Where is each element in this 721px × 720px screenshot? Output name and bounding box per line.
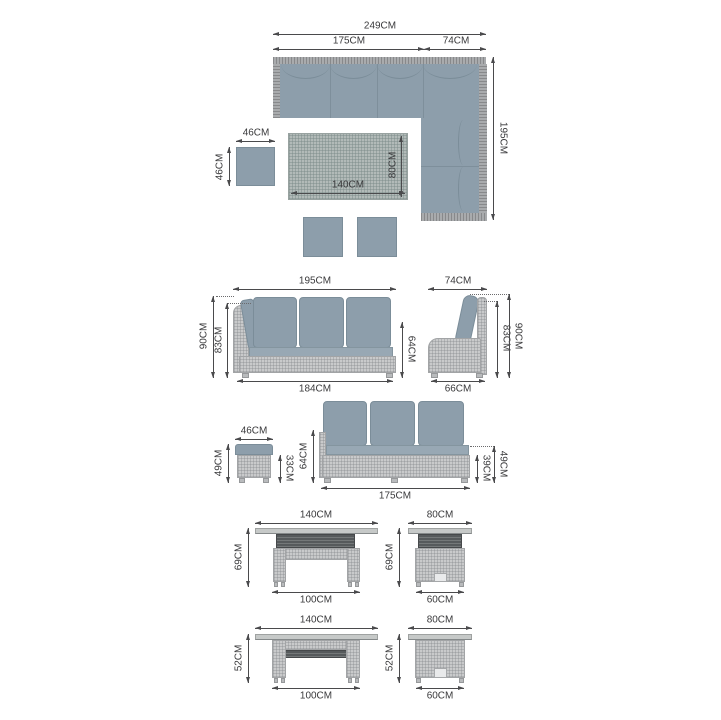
- dim-label-cushion-back-height: 83CM: [214, 327, 225, 354]
- dim-label-table-top-width: 140CM: [300, 510, 332, 521]
- dim-label-table-base-depth: 60CM: [427, 595, 454, 606]
- dim-line-stool-base-height: [280, 455, 281, 483]
- dim-line-lowtable-top-depth: [408, 628, 472, 629]
- dim-label-total-depth: 195CM: [498, 122, 509, 154]
- dim-label-lowtable-height-side: 52CM: [385, 645, 396, 672]
- foot: [391, 478, 398, 483]
- foot: [281, 582, 285, 587]
- foot: [416, 678, 421, 683]
- foot: [348, 582, 352, 587]
- dim-line-corner-section: [424, 49, 486, 50]
- table-underframe: [418, 534, 462, 548]
- extension-line: [470, 446, 494, 447]
- dim-label-table-height-side: 69CM: [385, 544, 396, 571]
- dim-label-lowtable-base-width: 100CM: [300, 691, 332, 702]
- dim-label-table-top-depth: 80CM: [427, 510, 454, 521]
- rattan-edge: [273, 57, 486, 64]
- dim-label-lowtable-top-width: 140CM: [300, 615, 332, 626]
- dim-label-end-height: 64CM: [406, 336, 417, 363]
- dim-line-table-length: [291, 193, 405, 194]
- dim-label-lowtable-top-depth: 80CM: [427, 615, 454, 626]
- dim-label-sofa-base-width: 184CM: [299, 384, 331, 395]
- dim-line-lowtable-top-width: [255, 628, 378, 629]
- dim-label-side-table-width: 46CM: [243, 128, 270, 139]
- foot: [386, 373, 393, 378]
- dim-label-stool-base-height: 33CM: [284, 455, 295, 482]
- cushion-divider: [421, 166, 479, 167]
- dim-label-section-base-height: 39CM: [481, 455, 492, 482]
- dim-line-end-height: [402, 322, 403, 378]
- dim-line-table-top-depth: [408, 523, 472, 524]
- dim-line-section-seat-height: [494, 446, 495, 483]
- foot: [431, 373, 438, 378]
- foot: [263, 478, 269, 483]
- extension-line: [470, 294, 509, 295]
- dim-line-section-base-height: [477, 455, 478, 483]
- back-cushion: [323, 401, 367, 446]
- dim-label-table-height: 69CM: [234, 544, 245, 571]
- rattan-edge: [421, 213, 487, 221]
- dim-line-cushion-back-height: [227, 303, 228, 378]
- base-detail: [434, 668, 447, 678]
- table-underframe: [276, 534, 355, 548]
- back-cushion: [458, 167, 478, 211]
- dim-line-side-total-height: [509, 294, 510, 378]
- table-leg: [346, 640, 360, 678]
- dim-label-side-table-depth: 46CM: [215, 154, 226, 181]
- table-underframe: [282, 650, 350, 658]
- dim-label-left-section: 175CM: [333, 36, 365, 47]
- rattan-edge: [479, 64, 487, 214]
- table-leg: [347, 548, 360, 582]
- dim-line-side-table-depth: [229, 147, 230, 186]
- dim-label-section-width: 175CM: [379, 491, 411, 502]
- dim-line-stool-total-height: [228, 444, 229, 483]
- stool-base: [237, 455, 271, 478]
- back-cushion: [346, 297, 391, 348]
- dim-line-total-depth: [493, 57, 494, 220]
- seat-cushion: [326, 445, 469, 455]
- foot: [476, 373, 483, 378]
- back-cushion: [253, 297, 297, 348]
- dim-label-corner-section: 74CM: [443, 36, 470, 47]
- dim-label-side-total-height: 90CM: [513, 323, 524, 350]
- dim-label-table-length: 140CM: [332, 180, 364, 191]
- dim-line-left-section: [273, 49, 424, 50]
- dim-line-lowtable-height-side: [399, 634, 400, 683]
- cushion-divider: [330, 64, 331, 118]
- dim-label-section-seat-height: 49CM: [498, 451, 509, 478]
- foot: [274, 582, 278, 587]
- cushion-divider: [423, 64, 424, 118]
- table-leg: [273, 548, 286, 582]
- table-leg: [272, 640, 286, 678]
- dim-label-stool-total-height: 49CM: [214, 450, 225, 477]
- back-cushion: [418, 401, 464, 446]
- base-detail: [434, 573, 447, 582]
- dim-line-lowtable-height: [248, 634, 249, 683]
- dim-label-stool-width: 46CM: [241, 426, 268, 437]
- foot: [324, 478, 331, 483]
- dim-line-section-end-height: [313, 430, 314, 483]
- dim-line-sofa-width: [233, 289, 396, 290]
- foot: [459, 582, 464, 587]
- dim-label-back-height: 90CM: [199, 323, 210, 350]
- dim-label-lowtable-height: 52CM: [234, 645, 245, 672]
- back-cushion: [370, 401, 415, 446]
- dim-label-total-width: 249CM: [364, 21, 396, 32]
- dim-line-table-top-width: [255, 523, 378, 524]
- dim-label-sofa-width: 195CM: [299, 276, 331, 287]
- back-cushion: [299, 297, 344, 348]
- stool-cushion: [235, 444, 273, 455]
- dim-label-section-end-height: 64CM: [299, 443, 310, 470]
- foot: [348, 678, 352, 683]
- dim-line-table-height: [248, 528, 249, 587]
- stool-top-view: [303, 217, 343, 257]
- foot: [416, 582, 421, 587]
- dim-line-stool-width: [235, 439, 273, 440]
- dimensions-diagram: 249CM 175CM 74CM: [0, 0, 721, 720]
- stool-top-view: [357, 217, 397, 257]
- foot: [281, 678, 285, 683]
- section-base: [322, 455, 470, 478]
- foot: [239, 478, 245, 483]
- sofa-base: [239, 356, 396, 373]
- dim-label-side-base-depth: 66CM: [445, 384, 472, 395]
- sofa-side-body: [428, 338, 481, 373]
- side-table-top-view: [236, 147, 275, 186]
- dim-line-table-height-side: [399, 528, 400, 587]
- dim-line-side-back-height: [497, 301, 498, 378]
- foot: [355, 582, 359, 587]
- dim-line-sofa-depth: [428, 289, 487, 290]
- foot: [459, 678, 464, 683]
- dim-line-table-width: [401, 136, 402, 197]
- foot: [242, 373, 249, 378]
- cushion-divider: [377, 64, 378, 118]
- dim-label-sofa-depth: 74CM: [445, 276, 472, 287]
- back-cushion: [458, 120, 478, 165]
- extension-line: [216, 296, 234, 297]
- foot: [355, 678, 359, 683]
- foot: [461, 478, 468, 483]
- extension-line: [227, 303, 251, 304]
- dim-label-lowtable-base-depth: 60CM: [427, 691, 454, 702]
- dim-label-table-width: 80CM: [388, 152, 399, 179]
- foot: [274, 678, 278, 683]
- rattan-edge: [273, 64, 280, 118]
- dim-line-side-table-width: [236, 141, 275, 142]
- dim-label-table-base-width: 100CM: [300, 595, 332, 606]
